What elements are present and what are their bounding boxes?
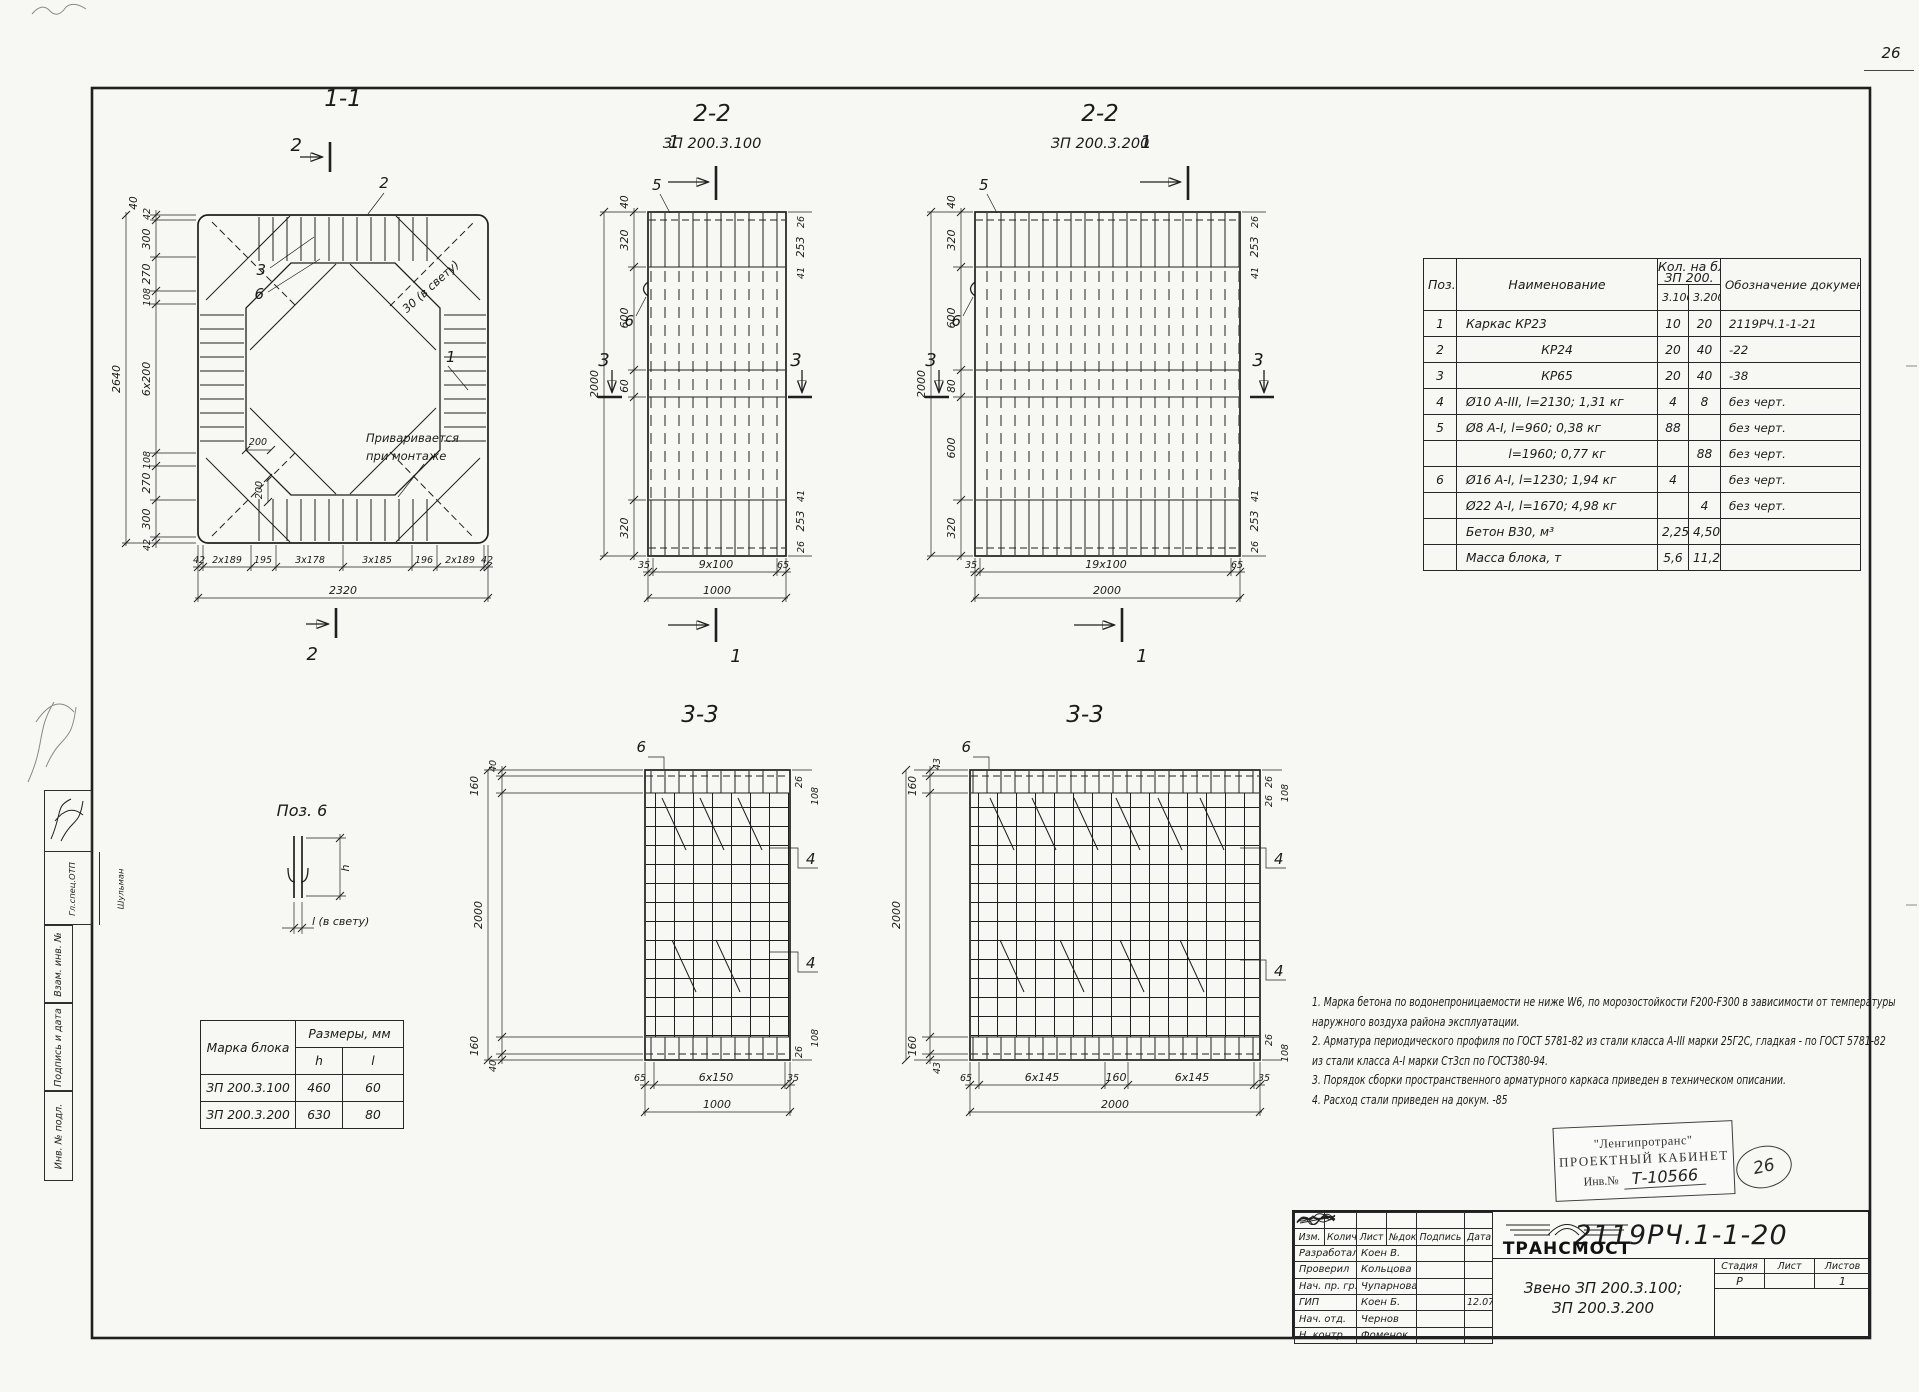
col-header-poz: Поз.: [1424, 259, 1457, 311]
callout-4: 4: [1274, 850, 1284, 868]
dim-label: 65: [777, 560, 789, 571]
dim-label: 300: [140, 229, 153, 250]
archive-stamp: "Ленгипротранс" ПРОЕКТНЫЙ КАБИНЕТ Инв.№ …: [1552, 1120, 1735, 1202]
dim-label: 6x200: [140, 362, 153, 397]
dim-label: 600: [618, 308, 631, 329]
dim-label: 3x178: [295, 555, 325, 566]
dim-label: 26: [1264, 795, 1275, 807]
dim-label: 108: [810, 787, 821, 805]
dim-label: 26: [1250, 216, 1261, 228]
dim-label: 2640: [110, 365, 123, 393]
sheets-value: 1: [1815, 1274, 1870, 1289]
dim-label: 6x150: [699, 1071, 734, 1084]
note-line: 4. Расход стали приведен на докум. -85: [1312, 1090, 1726, 1110]
title-block: Изм. Колич. Лист №док. Подпись Дата Разр…: [1292, 1210, 1870, 1338]
sig-row: ГИПКоен Б. 12.07: [1295, 1294, 1493, 1310]
dim-label: 35: [787, 1073, 799, 1084]
sheet-label: Лист: [1765, 1259, 1815, 1274]
dim-label: 40: [128, 196, 140, 210]
callout-6: 6: [961, 738, 971, 756]
drawing-sheet: 1-1 2 2 3 6 2 1 30 (в свету) Приваривает…: [0, 0, 1919, 1392]
dim-label: 320: [945, 518, 958, 539]
dim-label: 270: [140, 264, 153, 285]
dim-label: 42: [193, 555, 205, 566]
note-line: 3. Порядок сборки пространственного арма…: [1312, 1070, 1726, 1090]
dim-label: h: [339, 864, 352, 871]
callout-4: 4: [806, 954, 816, 972]
dim-label: 2000: [1101, 1098, 1129, 1111]
col-ndok: №док.: [1387, 1229, 1417, 1245]
block-size-header: Размеры, мм: [296, 1021, 404, 1048]
margin-role: Гл.спец.ОТП: [67, 862, 77, 916]
dim-label: 200: [249, 437, 267, 448]
spec-row: Бетон В30, м³2,254,50: [1424, 519, 1861, 545]
dim-label: 6x145: [1025, 1071, 1060, 1084]
sheets-label: Листов: [1815, 1259, 1870, 1274]
dim-label: 41: [1250, 267, 1261, 279]
section-2-2-100-title: 2-2: [693, 101, 731, 127]
dim-label: 108: [142, 288, 153, 306]
callout-4: 4: [806, 850, 816, 868]
dim-label: 26: [794, 1046, 805, 1058]
dim-label: 19x100: [1085, 558, 1127, 571]
col-kolich: Колич.: [1325, 1229, 1357, 1245]
col-izm: Изм.: [1295, 1229, 1325, 1245]
spec-row: 2КР242040-22: [1424, 337, 1861, 363]
col-header-doc: Обозначение документа: [1721, 259, 1861, 311]
cut-mark-1-label: 1: [730, 646, 741, 667]
dim-label: 26: [796, 541, 807, 553]
pos-6-clearance-dim: l (в свету): [312, 915, 369, 928]
dim-label: 195: [254, 555, 272, 566]
dim-label: 600: [945, 308, 958, 329]
margin-role-name: Шульман: [115, 868, 125, 909]
sig-row: Нач. отд.Чернов: [1295, 1311, 1493, 1327]
dim-label: 35: [1258, 1073, 1270, 1084]
dim-label: 3x185: [362, 555, 392, 566]
stamp-inv-number: Т-10566: [1623, 1164, 1707, 1189]
dim-label: 253: [794, 237, 807, 258]
col-podpis: Подпись: [1417, 1229, 1465, 1245]
weld-note-line2: при монтаже: [366, 449, 446, 463]
dim-label: 2320: [329, 584, 357, 597]
callout-5: 5: [979, 176, 989, 194]
dim-label: 40: [946, 195, 958, 209]
dim-label: 65: [634, 1073, 646, 1084]
note-line: 2. Арматура периодического профиля по ГО…: [1312, 1031, 1726, 1051]
dim-label: 43: [932, 1062, 943, 1074]
dim-label: 41: [796, 267, 807, 279]
callout-6: 6: [636, 738, 646, 756]
margin-cell-vzam: Взам. инв. №: [44, 925, 73, 1003]
dim-label: 26: [1264, 1034, 1275, 1046]
note-line: наружного воздуха района эксплуатации.: [1312, 1012, 1726, 1032]
drawing-subject: Звено ЗП 200.3.100; ЗП 200.3.200: [1492, 1259, 1715, 1337]
col-header-3200: 3.200: [1689, 285, 1721, 311]
dim-label: 196: [415, 555, 433, 566]
dim-label: 160: [1106, 1071, 1127, 1084]
dim-label: 6x145: [1175, 1071, 1210, 1084]
cut-mark-3-label: 3: [1252, 350, 1263, 371]
col-header-qty: Кол. на блок ЗП 200.: [1658, 259, 1721, 285]
dim-label: 26: [1264, 776, 1275, 788]
subject-line1: Звено ЗП 200.3.100;: [1524, 1278, 1683, 1298]
section-3-3-100-drawing: 3-3 6 4 4 40 160 160 40 2000 26 108 108: [469, 702, 821, 1116]
block-l-header: l: [343, 1048, 404, 1075]
dim-label: 2000: [472, 901, 485, 929]
weld-note-line1: Приваривается: [366, 431, 459, 445]
empty-cell: [1465, 1213, 1493, 1229]
specification-table: Поз. Наименование Кол. на блок ЗП 200. О…: [1423, 258, 1860, 571]
title-block-signatures: Изм. Колич. Лист №док. Подпись Дата Разр…: [1294, 1212, 1493, 1344]
dim-label: 42: [481, 555, 493, 566]
dim-label: 35: [965, 560, 977, 571]
block-mark-header: Марка блока: [201, 1021, 296, 1075]
dim-label: 40: [619, 195, 631, 209]
dim-label: 160: [907, 776, 919, 796]
margin-cell-inv: Инв. № подл.: [44, 1091, 73, 1181]
dim-label: 9x100: [699, 558, 734, 571]
section-2-2-200-title: 2-2: [1081, 101, 1119, 127]
spec-row: 1Каркас КР2310202119РЧ.1-1-21: [1424, 311, 1861, 337]
dim-label: 160: [469, 776, 481, 796]
spec-row: 4Ø10 А-III, l=2130; 1,31 кг48без черт.: [1424, 389, 1861, 415]
cut-mark-1-label: 1: [1136, 646, 1147, 667]
section-3-3-100-title: 3-3: [681, 702, 719, 728]
col-header-name: Наименование: [1457, 259, 1658, 311]
cut-mark-3-label: 3: [790, 350, 801, 371]
dim-label: 200: [254, 481, 265, 499]
empty-cell: [1387, 1213, 1417, 1229]
dim-label: 65: [960, 1073, 972, 1084]
section-1-1-title: 1-1: [324, 86, 362, 112]
dim-label: 2000: [588, 370, 601, 398]
dim-label: 300: [140, 509, 153, 530]
cut-mark-2-label: 2: [291, 135, 302, 156]
dim-label: 40: [488, 760, 499, 772]
cut-mark-2-label: 2: [307, 644, 318, 665]
dim-label: 2x189: [212, 555, 242, 566]
dim-label: 26: [1250, 541, 1261, 553]
col-header-3100: 3.100: [1658, 285, 1689, 311]
block-row: ЗП 200.3.10046060: [201, 1075, 404, 1102]
dim-label: 2x189: [445, 555, 475, 566]
pos-6-detail: Поз. 6 h l (в свету): [277, 801, 370, 934]
dim-label: 40: [488, 1060, 499, 1072]
note-line: из стали класса А-I марки Ст3сп по ГОСТ3…: [1312, 1051, 1726, 1071]
dim-label: 320: [618, 230, 631, 251]
dim-label: 60: [619, 379, 631, 393]
dim-label: 253: [1248, 511, 1261, 532]
general-notes: 1. Марка бетона по водонепроницаемости н…: [1312, 992, 1872, 1109]
spec-row: l=1960; 0,77 кг88без черт.: [1424, 441, 1861, 467]
dim-label: 600: [945, 438, 958, 459]
sheet-value: [1765, 1274, 1815, 1289]
callout-6: 6: [254, 285, 264, 303]
empty-cell: [1417, 1213, 1465, 1229]
dim-label: 26: [796, 216, 807, 228]
dim-label: 1000: [703, 1098, 731, 1111]
block-marks-table: Марка блока Размеры, мм h l ЗП 200.3.100…: [200, 1020, 403, 1129]
sig-row: ПроверилКольцова: [1295, 1262, 1493, 1278]
callout-3: 3: [256, 261, 266, 279]
dim-label: 65: [1231, 560, 1243, 571]
sig-row: Н. контр.Фоменок: [1295, 1327, 1493, 1343]
transmost-logo: ТРАНСМОСТ: [1715, 1289, 1870, 1337]
dim-label: 1000: [703, 584, 731, 597]
section-2-2-100-drawing: 2-2 ЗП 200.3.100 6 5 1 1 3 3 40: [588, 101, 812, 667]
block-row: ЗП 200.3.20063080: [201, 1102, 404, 1129]
dim-label: 2000: [890, 901, 903, 929]
dim-label: 160: [469, 1036, 481, 1056]
dim-label: 43: [932, 758, 943, 770]
callout-2: 2: [379, 174, 389, 192]
stage-label: Стадия: [1715, 1259, 1765, 1274]
subject-line2: ЗП 200.3.200: [1552, 1298, 1654, 1318]
spec-row: 3КР652040-38: [1424, 363, 1861, 389]
sig-row: РазработалКоен В.: [1295, 1245, 1493, 1261]
dim-label: 253: [794, 511, 807, 532]
sig-row: Нач. пр. гр.Чупарнова: [1295, 1278, 1493, 1294]
stamp-inv-label: Инв.№: [1583, 1173, 1619, 1190]
page-number-underline: [1864, 70, 1914, 71]
page-number: 26: [1868, 44, 1914, 62]
margin-signature: [28, 702, 76, 782]
section-2-2-200-drawing: 2-2 ЗП 200.3.200 6 5 1 1 3 3 40: [915, 101, 1274, 667]
section-3-3-200-title: 3-3: [1066, 702, 1104, 728]
col-data: Дата: [1465, 1229, 1493, 1245]
dim-label: 108: [810, 1029, 821, 1047]
section-2-2-200-subtitle: ЗП 200.3.200: [1051, 136, 1150, 152]
spec-row: 5Ø8 А-I, l=960; 0,38 кг88без черт.: [1424, 415, 1861, 441]
dim-label: 108: [1280, 1044, 1291, 1062]
dim-label: 270: [140, 473, 153, 494]
dim-label: 160: [907, 1036, 919, 1056]
block-h-header: h: [296, 1048, 343, 1075]
dim-label: 253: [1248, 237, 1261, 258]
dim-label: 41: [796, 490, 807, 502]
callout-1: 1: [446, 348, 456, 366]
spec-row: 6Ø16 А-I, l=1230; 1,94 кг4без черт.: [1424, 467, 1861, 493]
dim-label: 41: [1250, 490, 1261, 502]
margin-signature-area: [45, 791, 91, 852]
callout-5: 5: [652, 176, 662, 194]
margin-cell-podpis: Подпись и дата: [44, 1003, 73, 1091]
dim-label: 42: [142, 208, 153, 220]
dim-label: ТРАНСМОСТ: [1503, 1239, 1631, 1258]
dim-label: 320: [945, 230, 958, 251]
cut-mark-1-label: 1: [668, 132, 679, 153]
dim-label: 26: [794, 776, 805, 788]
dim-label: 35: [638, 560, 650, 571]
dim-label: 42: [142, 539, 153, 551]
qty-header-line2: ЗП 200.: [1658, 272, 1720, 283]
note-line: 1. Марка бетона по водонепроницаемости н…: [1312, 992, 1726, 1012]
section-3-3-200-drawing: 3-3 6 4 4 43 160 160 43 2000 26 26: [890, 702, 1291, 1116]
dim-label: 108: [1280, 784, 1291, 802]
callout-4: 4: [1274, 962, 1284, 980]
empty-cell: [1357, 1213, 1387, 1229]
spec-row: Ø22 А-I, l=1670; 4,98 кг4без черт.: [1424, 493, 1861, 519]
col-list: Лист: [1357, 1229, 1387, 1245]
dim-label: 320: [618, 518, 631, 539]
cut-mark-1-label: 1: [1140, 132, 1151, 153]
pos-6-title: Поз. 6: [277, 801, 328, 820]
scan-artifact: [32, 4, 86, 14]
stage-value: Р: [1715, 1274, 1765, 1289]
dim-label: 108: [142, 451, 153, 469]
dim-label: 2000: [915, 370, 928, 398]
spec-row: Масса блока, т5,611,2: [1424, 545, 1861, 571]
section-1-1-drawing: 1-1 2 2 3 6 2 1 30 (в свету) Приваривает…: [110, 86, 493, 665]
margin-stamp-approver: Гл.спец.ОТП Шульман: [44, 790, 92, 925]
dim-label: 2000: [1093, 584, 1121, 597]
dim-label: 80: [946, 379, 958, 393]
